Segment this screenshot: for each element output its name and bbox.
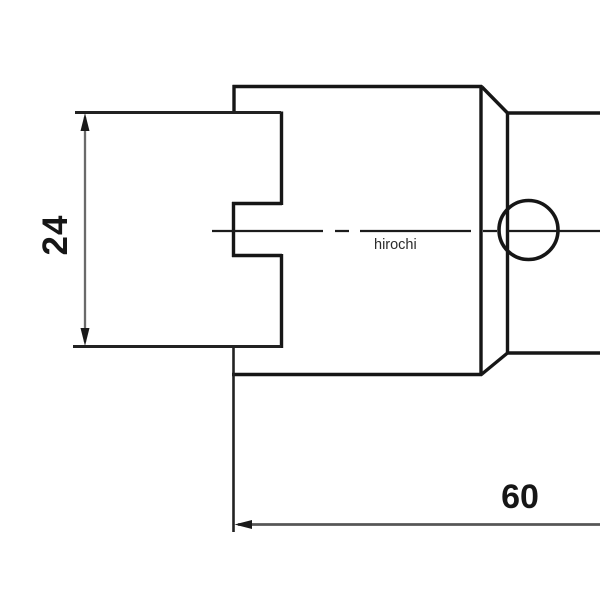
technical-drawing-canvas: 24 60 hirochi <box>0 0 600 600</box>
chamfer-bottom-edge <box>482 353 508 374</box>
dim-60-label: 60 <box>501 478 539 516</box>
chamfer-top-edge <box>482 87 508 113</box>
part-drawing-svg: 24 60 hirochi <box>0 0 600 600</box>
dim-24-arrow-up-icon <box>81 113 90 131</box>
dim-24-label: 24 <box>36 215 75 256</box>
dim-24-arrow-down-icon <box>81 328 90 346</box>
dimension-24: 24 <box>36 113 281 347</box>
dim-60-arrow-left-icon <box>235 520 253 529</box>
watermark-text: hirochi <box>374 237 417 253</box>
